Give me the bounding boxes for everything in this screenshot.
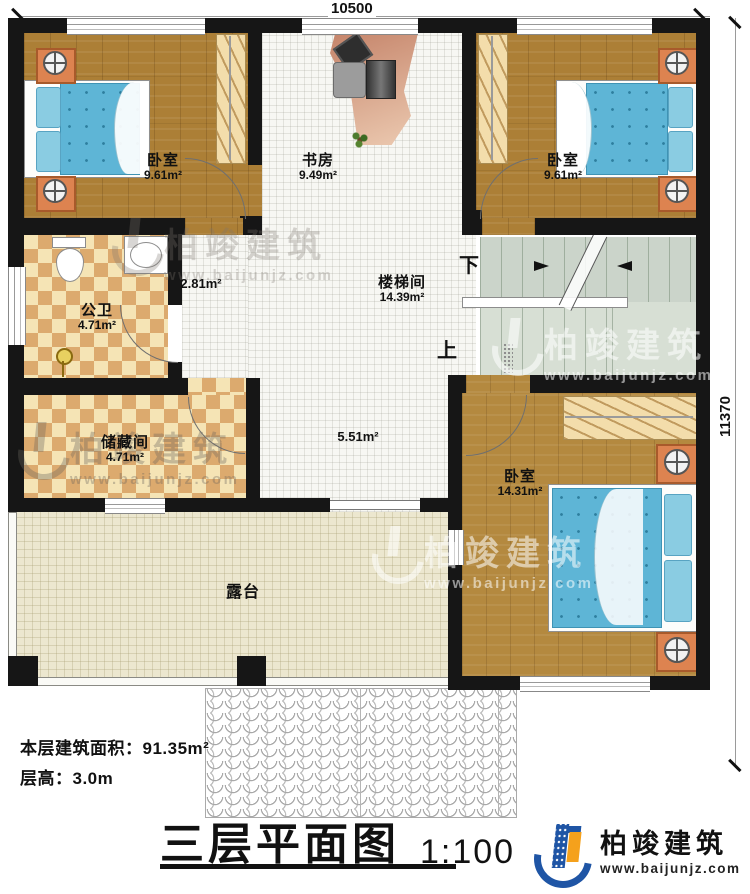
room-label-bathroom: 公卫 4.71m² (52, 302, 142, 333)
wall (535, 218, 710, 235)
wall (8, 218, 185, 235)
door-opening (466, 375, 530, 393)
floor-area-text: 本层建筑面积：91.35m² (20, 734, 209, 759)
wall (650, 676, 710, 690)
wall (530, 375, 710, 393)
door-opening (185, 218, 243, 235)
drawing-title-block: 三层平面图 1:100 (160, 808, 515, 872)
wall (462, 210, 482, 235)
door-opening (188, 378, 246, 395)
wardrobe-rod (491, 36, 493, 160)
wardrobe (478, 34, 508, 164)
terrace-column (237, 656, 266, 686)
wardrobe (216, 34, 246, 164)
lamp-icon (664, 449, 690, 475)
pillow (36, 87, 61, 128)
room-label-bedroom-top-left: 卧室 9.61m² (118, 152, 208, 183)
lamp-icon (664, 637, 690, 663)
room-label-corridor: 5.51m² (322, 430, 394, 445)
lamp-icon (665, 179, 689, 203)
window (448, 530, 464, 565)
right-dimension-line (735, 18, 736, 768)
door-opening (248, 165, 262, 218)
window (67, 18, 205, 35)
pillow (664, 494, 692, 556)
toilet-tank (52, 237, 86, 248)
floor-drain-icon (56, 348, 73, 365)
window (520, 676, 650, 692)
window (302, 18, 418, 35)
wall (165, 498, 330, 512)
room-label-terrace: 露台 (198, 584, 288, 602)
desk-chair (333, 62, 366, 98)
wall (462, 18, 476, 210)
sink-basin (130, 242, 162, 268)
stair-column-marker (503, 343, 513, 373)
title-underline (160, 864, 456, 869)
room-label-study: 书房 9.49m² (273, 152, 363, 183)
roof-divider (360, 688, 361, 816)
drawing-title: 三层平面图 (160, 808, 400, 872)
wall (168, 235, 182, 305)
blanket (594, 489, 643, 625)
hallway-floor (182, 235, 248, 378)
stair-break-arrow-left (534, 261, 549, 271)
brand-website: www.baijunjz.com (600, 861, 741, 876)
wall (248, 18, 262, 165)
wardrobe (563, 396, 697, 440)
stair-handrail (462, 297, 628, 308)
room-label-hallway: 2.81m² (165, 277, 237, 292)
wall (420, 498, 448, 512)
wardrobe-rod (229, 36, 231, 160)
wall (8, 378, 188, 395)
stair-lower-flight (480, 302, 612, 375)
brand-logo: 柏竣建筑 www.baijunjz.com (534, 824, 741, 882)
lamp-icon (43, 51, 67, 75)
wall (8, 498, 105, 512)
room-label-storage: 储藏间 4.71m² (80, 434, 170, 465)
wall (448, 676, 520, 690)
floor-plan-page: 10500 11370 (0, 0, 750, 894)
window (8, 267, 26, 345)
floor-height-text: 层高：3.0m (20, 764, 113, 789)
terrace-parapet-bottom (8, 677, 450, 686)
wall (448, 375, 466, 393)
window (517, 18, 652, 35)
wall (448, 565, 462, 690)
pillow (668, 131, 693, 172)
wall (696, 18, 710, 690)
room-label-bedroom-bottom: 卧室 14.31m² (474, 468, 566, 499)
window (105, 498, 165, 514)
terrace-column (8, 656, 38, 686)
wall (8, 345, 24, 512)
brand-logo-icon (534, 824, 592, 882)
brand-name: 柏竣建筑 (600, 831, 741, 858)
stair-break-arrow-right (617, 261, 632, 271)
stairs-down-label: 下 (459, 249, 479, 278)
roof-tiles (205, 688, 517, 818)
room-label-bedroom-top-right: 卧室 9.61m² (518, 152, 608, 183)
room-label-stairwell: 楼梯间 14.39m² (356, 274, 448, 305)
stairs-up-label: 上 (437, 334, 457, 363)
pillow (664, 560, 692, 622)
lamp-icon (43, 179, 67, 203)
roof-divider (498, 688, 499, 816)
floor-drain-stem (62, 361, 64, 377)
top-dimension-label: 10500 (328, 0, 376, 17)
stair-divider (612, 302, 613, 375)
pillow (36, 131, 61, 172)
wardrobe-rod (565, 416, 693, 418)
wall (448, 393, 462, 530)
right-dimension-label: 11370 (717, 393, 734, 440)
pillow (668, 87, 693, 128)
sliding-door (330, 500, 420, 510)
lamp-icon (665, 51, 689, 75)
plant-icon (350, 130, 370, 150)
wall (246, 378, 260, 512)
door-opening (482, 218, 535, 235)
monitor-icon (366, 60, 396, 99)
